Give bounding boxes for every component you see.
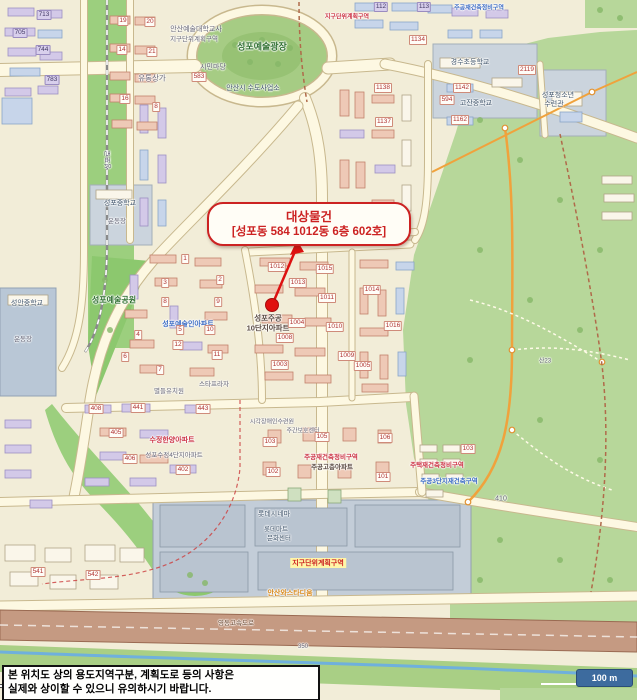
building (40, 52, 62, 60)
scale-tick (541, 683, 576, 685)
building (160, 552, 248, 592)
building (200, 280, 222, 288)
building (303, 428, 316, 441)
building (355, 20, 383, 28)
building (140, 455, 168, 463)
building (263, 462, 276, 475)
building (150, 255, 176, 263)
building (448, 30, 472, 38)
callout-title: 대상물건 (286, 210, 332, 225)
building (8, 8, 34, 16)
building (480, 30, 502, 38)
building (355, 92, 364, 118)
building (398, 352, 406, 376)
building (372, 130, 394, 138)
building (125, 310, 147, 318)
building (372, 95, 394, 103)
building (140, 430, 168, 438)
building (195, 258, 221, 266)
building (447, 84, 473, 92)
building (602, 212, 632, 220)
building (486, 10, 508, 18)
building (130, 478, 156, 486)
map-canvas[interactable]: 성포예술광장안산예술대학교사지구단위계획구역유통상가시민마당583안산시 수도사… (0, 0, 637, 700)
building (396, 262, 414, 270)
building (90, 575, 118, 589)
building (30, 500, 52, 508)
building (5, 420, 31, 428)
building (355, 3, 385, 11)
building (392, 3, 420, 11)
basemap-svg (0, 0, 637, 700)
scale-bar-label: 100 m (592, 673, 618, 683)
building (110, 16, 130, 24)
building (604, 194, 634, 202)
disclaimer-line2: 실제와 상이할 수 있으니 유의하시기 바랍니다. (8, 683, 314, 697)
building (158, 108, 166, 138)
building (402, 140, 411, 166)
building (305, 318, 331, 326)
building (440, 58, 480, 68)
building (295, 348, 325, 356)
building (443, 459, 460, 466)
building (402, 95, 411, 121)
building (376, 462, 389, 475)
callout-address: [성포동 584 1012동 6층 602호] (232, 225, 386, 239)
building (343, 428, 356, 441)
building (155, 278, 177, 286)
building (447, 117, 473, 125)
building (10, 572, 38, 586)
building (85, 478, 109, 486)
building (295, 288, 325, 296)
building (190, 368, 214, 376)
building (340, 160, 349, 188)
building (96, 190, 132, 199)
building (160, 505, 245, 547)
building (2, 98, 32, 124)
building (260, 258, 290, 266)
building (112, 120, 132, 128)
disclaimer-box: 본 위치도 상의 용도지역구분, 계획도로 등의 사항은 실제와 상이할 수 있… (2, 665, 320, 700)
building (38, 30, 62, 38)
building (420, 459, 437, 466)
building (100, 452, 126, 460)
building (328, 490, 341, 503)
building (137, 122, 157, 130)
building (135, 17, 155, 25)
building (340, 130, 364, 138)
building (158, 155, 166, 183)
building (360, 288, 368, 314)
building (298, 465, 311, 478)
building (380, 355, 388, 379)
building (120, 548, 144, 562)
building (258, 552, 453, 590)
building (208, 345, 228, 353)
building (135, 96, 155, 104)
building (355, 505, 460, 547)
building (396, 288, 404, 314)
building (135, 46, 155, 54)
building (360, 260, 388, 268)
building (492, 78, 522, 87)
building (338, 465, 351, 478)
building (340, 90, 349, 116)
building (122, 404, 150, 412)
building (158, 200, 166, 226)
building (356, 162, 365, 188)
building (110, 72, 130, 80)
building (110, 44, 130, 52)
building (140, 198, 148, 226)
building (5, 445, 31, 453)
building (262, 315, 292, 323)
building (130, 275, 138, 299)
building (560, 112, 582, 122)
building (428, 5, 452, 13)
building (255, 345, 283, 353)
building (40, 10, 62, 18)
building (140, 150, 148, 180)
building (422, 474, 439, 481)
building (452, 8, 478, 16)
building (85, 405, 111, 413)
building (375, 165, 395, 173)
building (446, 474, 463, 481)
building (255, 285, 283, 293)
building (8, 295, 48, 305)
building (602, 176, 632, 184)
building (5, 88, 31, 96)
scale-bar: 100 m (576, 669, 633, 687)
building (378, 430, 391, 443)
building (360, 328, 388, 336)
building (268, 430, 281, 443)
building (300, 262, 328, 270)
building (38, 86, 58, 94)
building (170, 465, 196, 473)
building (8, 48, 36, 56)
building (265, 372, 293, 380)
building (5, 28, 35, 36)
building (360, 352, 368, 378)
building (420, 445, 437, 452)
building (5, 545, 35, 561)
building (180, 342, 202, 350)
building (185, 405, 209, 413)
building (110, 94, 130, 102)
building (135, 74, 155, 82)
building (45, 548, 71, 562)
building (170, 306, 178, 328)
building (10, 68, 40, 76)
building (362, 384, 388, 392)
callout-balloon: 대상물건 [성포동 584 1012동 6층 602호] (207, 202, 411, 246)
building (305, 375, 331, 383)
building (288, 488, 301, 501)
building (255, 508, 347, 546)
building (390, 22, 418, 30)
building (85, 545, 115, 561)
building (426, 490, 443, 497)
building (140, 365, 162, 373)
building (100, 428, 126, 436)
building (378, 290, 386, 316)
building (130, 340, 154, 348)
disclaimer-line1: 본 위치도 상의 용도지역구분, 계획도로 등의 사항은 (8, 669, 314, 683)
building (205, 312, 227, 320)
building (5, 470, 31, 478)
building (443, 445, 460, 452)
